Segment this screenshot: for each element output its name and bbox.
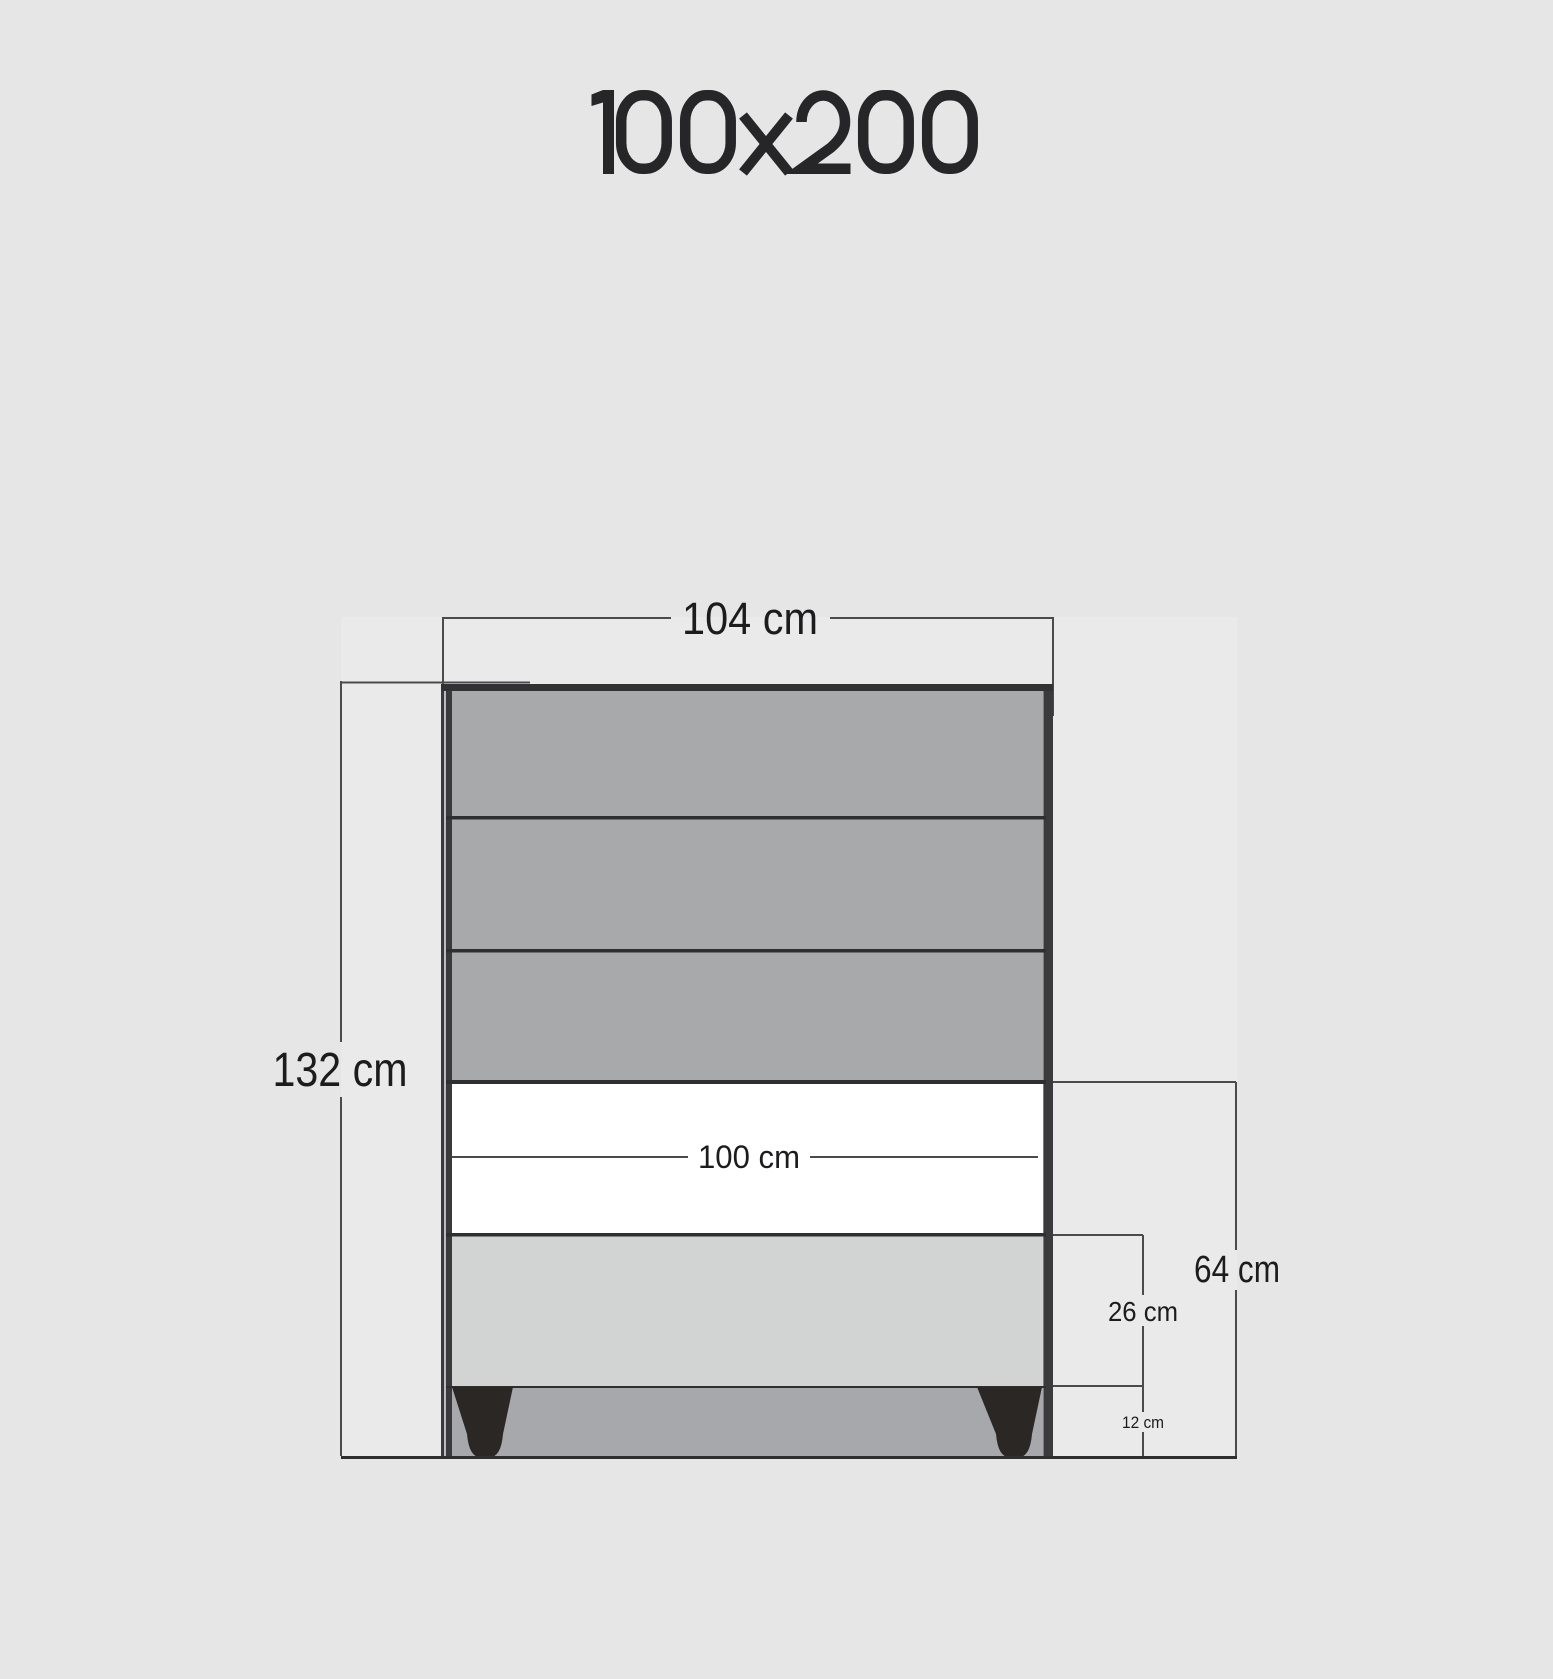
svg-text:64 cm: 64 cm: [1194, 1249, 1280, 1291]
svg-text:26 cm: 26 cm: [1108, 1296, 1178, 1327]
svg-text:104 cm: 104 cm: [682, 593, 818, 644]
svg-text:12 cm: 12 cm: [1122, 1414, 1164, 1432]
svg-text:100 cm: 100 cm: [698, 1139, 800, 1175]
svg-text:132 cm: 132 cm: [273, 1044, 408, 1097]
